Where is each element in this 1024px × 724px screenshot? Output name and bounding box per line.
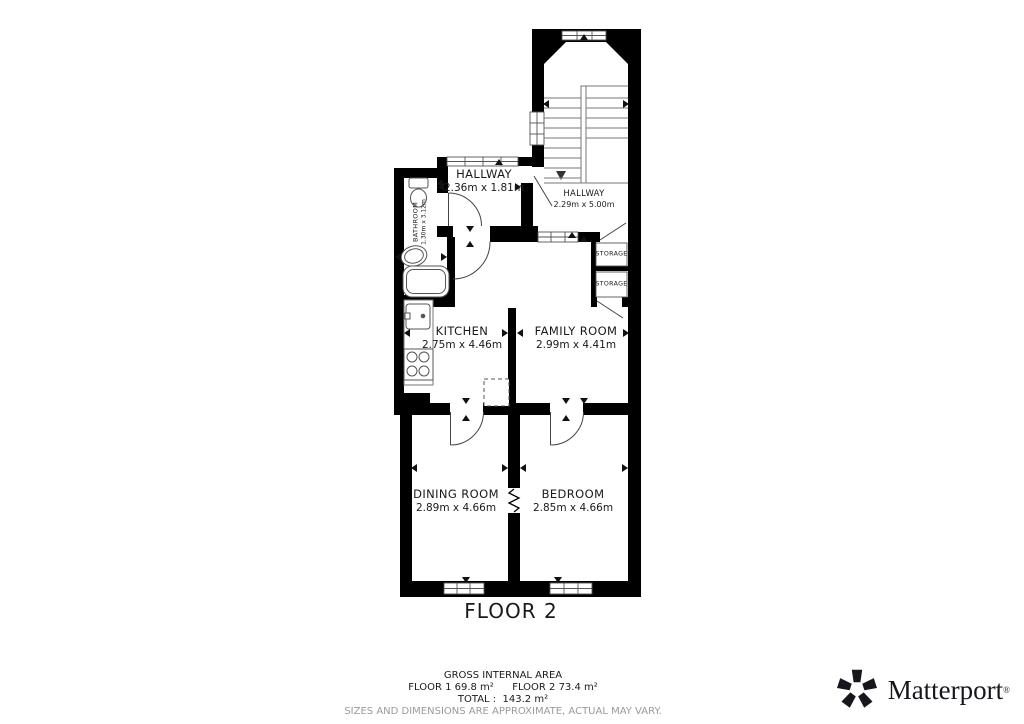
room-label-dining-room: DINING ROOM 2.89m x 4.66m — [413, 487, 499, 515]
appliance-dashed — [484, 379, 509, 406]
room-label-hallway-right: HALLWAY 2.29m x 5.00m — [553, 189, 614, 210]
floor-areas-line: FLOOR 1 69.8 m² FLOOR 2 73.4 m² — [344, 682, 661, 694]
staircase — [544, 86, 628, 183]
door-kitchen-entry — [453, 242, 490, 279]
floor-title: FLOOR 2 — [464, 599, 557, 623]
window-hallway-top — [447, 157, 518, 166]
stair-direction-arrow — [556, 171, 566, 180]
room-label-bathroom: BATHROOM 1.30m x 3.12m — [412, 199, 429, 245]
room-label-storage-2: STORAGE — [595, 281, 627, 288]
stove — [404, 349, 433, 380]
registered-mark: ® — [1003, 685, 1010, 695]
matterport-wordmark: Matterport — [888, 675, 1003, 706]
window-dining — [444, 583, 484, 594]
floor-plan-page: HALLWAY 2.36m x 1.81m HALLWAY 2.29m x 5.… — [0, 0, 1024, 724]
total-area: TOTAL : 143.2 m² — [344, 694, 661, 706]
bathtub — [403, 266, 449, 297]
room-label-family-room: FAMILY ROOM 2.99m x 4.41m — [535, 324, 618, 352]
room-label-hallway-top: HALLWAY 2.36m x 1.81m — [444, 167, 524, 195]
disclaimer-text: SIZES AND DIMENSIONS ARE APPROXIMATE, AC… — [344, 706, 661, 718]
room-label-bedroom: BEDROOM 2.85m x 4.66m — [533, 487, 613, 515]
door-storage-top — [600, 223, 626, 240]
window-bedroom — [550, 583, 592, 594]
radiator-symbol — [509, 489, 519, 512]
floor-2-area: FLOOR 2 73.4 m² — [512, 682, 598, 693]
door-hallway-connect — [534, 176, 552, 206]
room-label-kitchen: KITCHEN 2.75m x 4.46m — [422, 324, 502, 352]
gross-internal-area-label: GROSS INTERNAL AREA — [344, 670, 661, 682]
window-stair-left — [530, 112, 544, 145]
door-bathroom — [449, 193, 482, 226]
footer-area-summary: GROSS INTERNAL AREA FLOOR 1 69.8 m² FLOO… — [344, 670, 661, 718]
room-label-storage-1: STORAGE — [595, 251, 627, 258]
floor-1-area: FLOOR 1 69.8 m² — [408, 682, 494, 693]
matterport-logo: Matterport® — [840, 668, 1010, 712]
door-storage-bottom — [597, 301, 623, 318]
